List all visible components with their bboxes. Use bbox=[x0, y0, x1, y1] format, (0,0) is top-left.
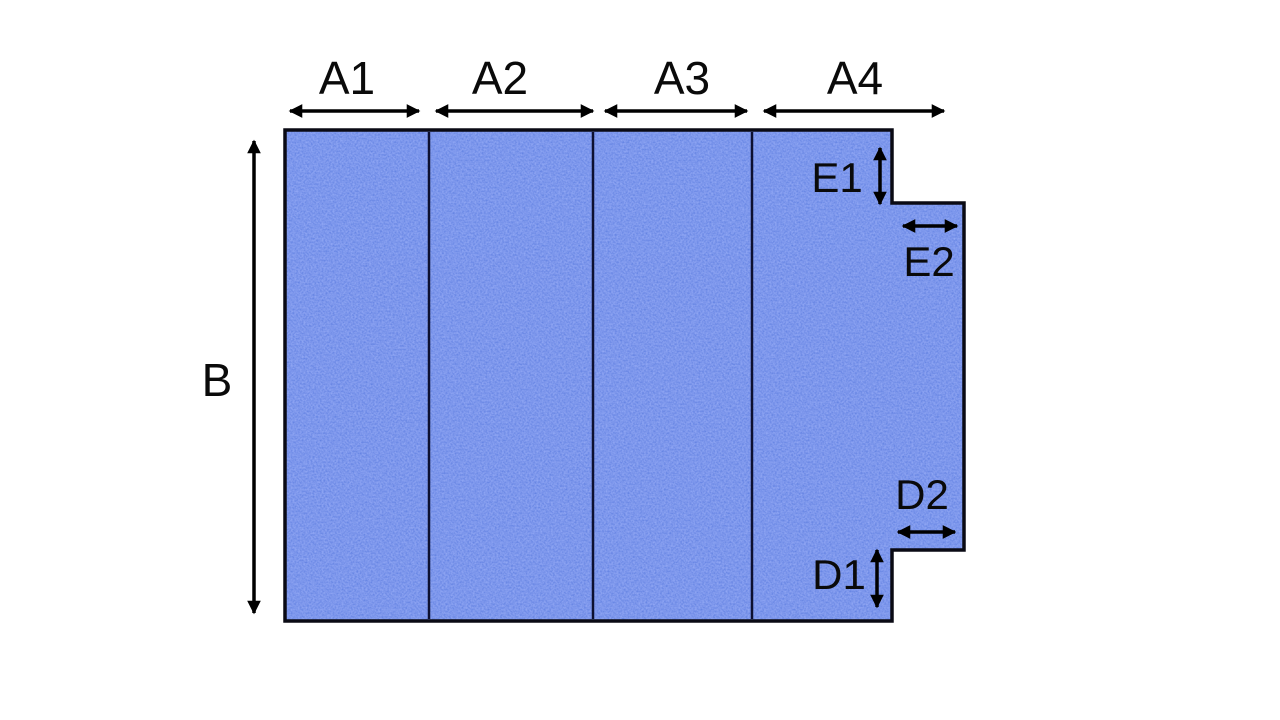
dim-label-e1: E1 bbox=[811, 154, 862, 201]
diagram-stage: A1 A2 A3 A4 B E1 E2 D2 D1 bbox=[0, 0, 1280, 720]
diagram-canvas: A1 A2 A3 A4 B E1 E2 D2 D1 bbox=[0, 0, 1280, 720]
dim-label-d1: D1 bbox=[812, 551, 866, 598]
dim-label-a2: A2 bbox=[472, 52, 528, 104]
dim-label-a3: A3 bbox=[654, 52, 710, 104]
dim-label-a4: A4 bbox=[827, 52, 883, 104]
dim-label-b: B bbox=[202, 354, 233, 406]
panel-body bbox=[285, 130, 964, 621]
dim-label-e2: E2 bbox=[903, 238, 954, 285]
dim-label-a1: A1 bbox=[319, 52, 375, 104]
dim-label-d2: D2 bbox=[895, 471, 949, 518]
panel-fabric-texture bbox=[285, 130, 964, 621]
